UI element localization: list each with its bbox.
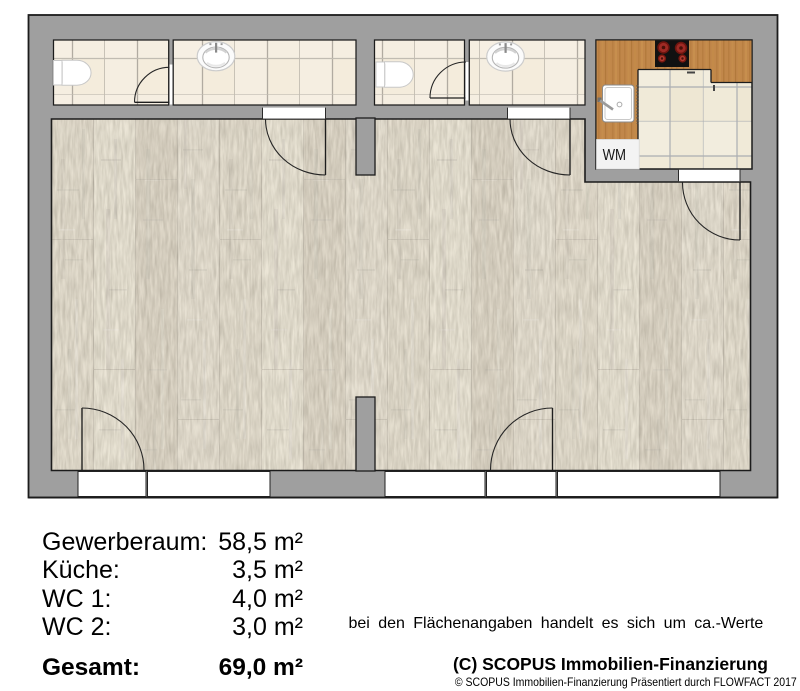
svg-text:WM: WM bbox=[603, 147, 626, 164]
